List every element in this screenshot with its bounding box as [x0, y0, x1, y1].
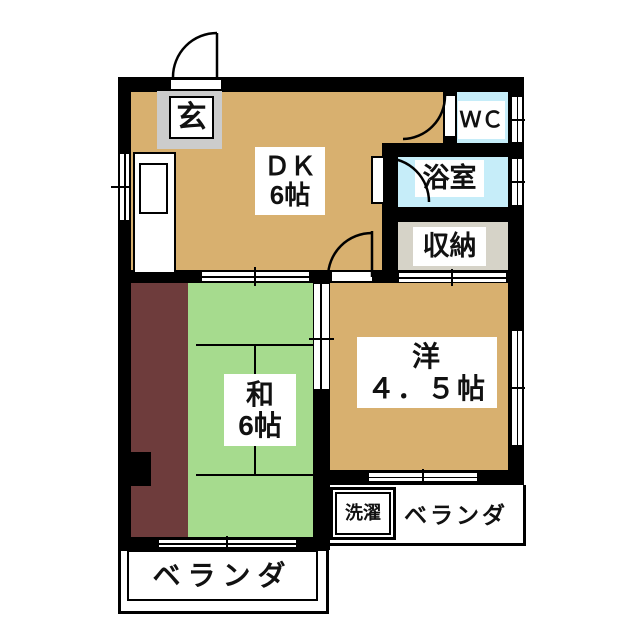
western-room-bottom-window-tick	[422, 469, 424, 485]
entrance-label-box: 玄	[169, 96, 214, 139]
laundry-box: 洗濯	[330, 487, 396, 540]
bath-door-jamb	[371, 156, 385, 204]
floor-plan: 玄 ＤＫ 6帖 ＷＣ 浴室 収納 和 6帖 洋 ４．５帖 洗濯 ベランダ ベラン…	[0, 0, 640, 640]
veranda-right-label: ベランダ	[404, 503, 508, 529]
western-room-side-window-tick	[509, 387, 525, 389]
veranda-bottom-label: ベランダ	[152, 560, 292, 591]
western-room-label-box: 洋 ４．５帖	[357, 337, 497, 408]
kitchen-sink	[139, 163, 168, 214]
storage-label: 収納	[423, 231, 477, 261]
entrance-threshold	[170, 79, 222, 90]
closet-strip	[131, 283, 188, 537]
storage-sliding-tick	[451, 269, 453, 286]
kitchen-counter	[133, 152, 176, 274]
veranda-right-side-line	[523, 485, 526, 546]
bathroom-label: 浴室	[423, 163, 477, 193]
wall-japanese-western	[313, 390, 330, 537]
laundry-inner-box: 洗濯	[335, 492, 391, 535]
dk-japanese-sliding-tick	[254, 267, 256, 286]
laundry-label: 洗濯	[345, 503, 381, 523]
wc-door-jamb	[444, 95, 456, 137]
veranda-bottom-inner: ベランダ	[127, 550, 318, 601]
dk-size: 6帖	[270, 181, 310, 210]
entrance-door-arc	[173, 33, 217, 77]
japanese-room-label: 和	[246, 379, 274, 410]
wc-label: ＷＣ	[459, 108, 503, 133]
entrance-label: 玄	[177, 101, 207, 135]
veranda-right-bottom-line	[330, 543, 526, 546]
japanese-room-label-box: 和 6帖	[224, 374, 296, 446]
dk-label-box: ＤＫ 6帖	[255, 147, 325, 215]
japanese-western-sliding-tick	[309, 338, 334, 340]
bathroom-window-tick	[509, 181, 525, 183]
wall-pillar	[128, 452, 151, 486]
dk-label: ＤＫ	[264, 152, 316, 181]
dk-western-doorway	[331, 271, 373, 282]
japanese-room-size: 6帖	[238, 410, 282, 441]
wc-window-tick	[509, 119, 525, 121]
veranda-right-label-box: ベランダ	[392, 500, 520, 532]
western-room-label: 洋	[412, 341, 442, 372]
wall-bath-top	[382, 143, 508, 157]
kitchen-window-tick	[111, 186, 119, 188]
kitchen-window	[119, 153, 130, 221]
wall-bath-storage	[382, 207, 508, 222]
western-room-size: ４．５帖	[367, 373, 487, 404]
japanese-western-sliding-door	[313, 283, 330, 390]
bathroom-label-box: 浴室	[415, 160, 484, 197]
storage-label-box: 収納	[413, 227, 486, 266]
wc-label-box: ＷＣ	[458, 101, 505, 139]
